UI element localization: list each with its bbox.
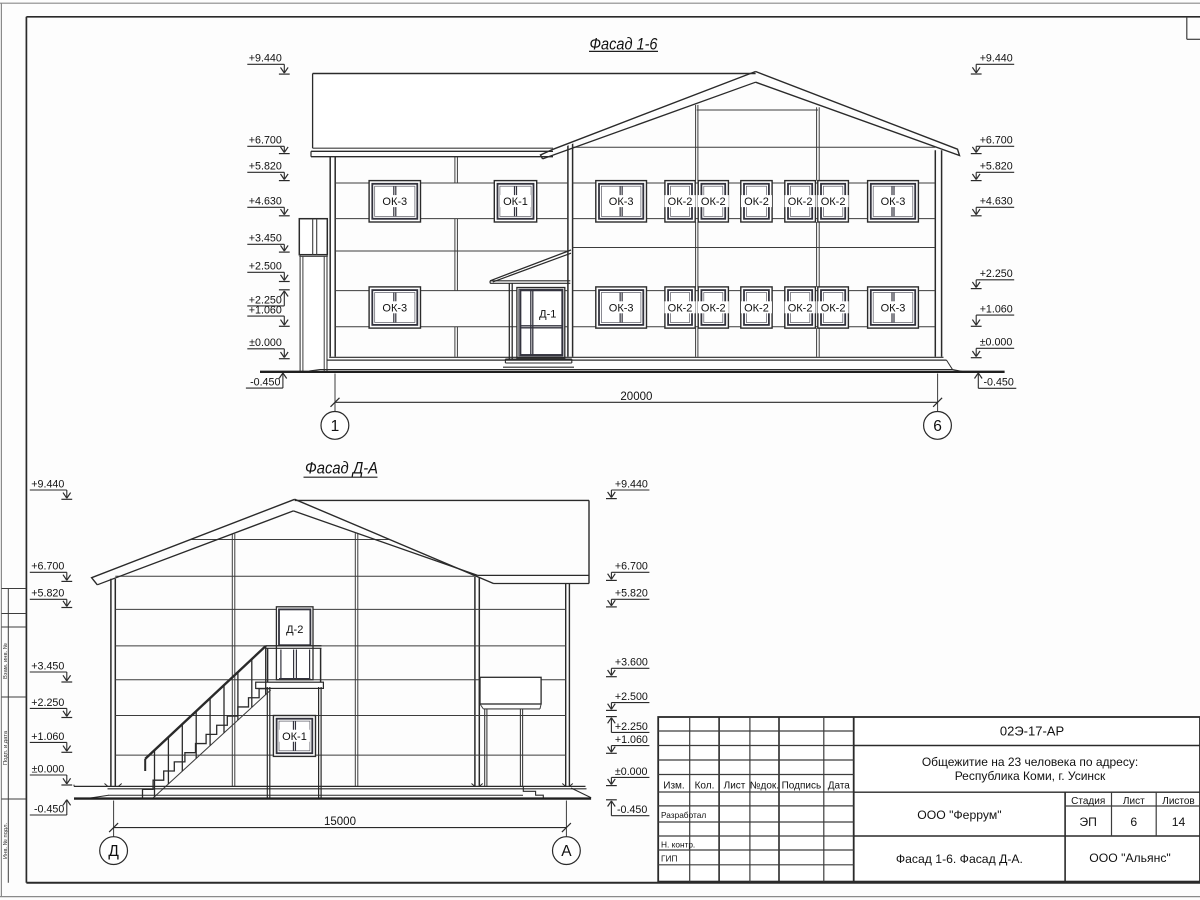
svg-text:Республика Коми, г. Усинск: Республика Коми, г. Усинск	[955, 769, 1106, 783]
svg-text:А: А	[561, 843, 572, 860]
svg-text:Подпись: Подпись	[782, 781, 822, 792]
svg-text:+6.700: +6.700	[615, 561, 648, 573]
svg-text:№док.: №док.	[750, 781, 779, 792]
svg-text:-0.450: -0.450	[984, 377, 1014, 389]
svg-text:Общежитие на 23 человека по ад: Общежитие на 23 человека по адресу:	[922, 755, 1138, 769]
svg-text:ОК-3: ОК-3	[382, 196, 407, 208]
svg-text:Лист: Лист	[1123, 796, 1145, 807]
svg-text:ОК-1: ОК-1	[503, 196, 528, 208]
svg-text:+5.820: +5.820	[249, 161, 282, 173]
svg-text:Инв. № подл.: Инв. № подл.	[3, 823, 9, 859]
svg-text:±0.000: ±0.000	[249, 337, 282, 349]
svg-text:02Э-17-АР: 02Э-17-АР	[1000, 724, 1064, 739]
svg-text:6: 6	[1130, 815, 1137, 829]
svg-text:ОК-3: ОК-3	[881, 302, 906, 314]
svg-text:Фасад 1-6. Фасад Д-А.: Фасад 1-6. Фасад Д-А.	[896, 852, 1023, 866]
svg-text:ОК-2: ОК-2	[788, 302, 813, 314]
svg-text:+9.440: +9.440	[31, 478, 64, 490]
svg-text:Подп. и дата: Подп. и дата	[3, 730, 9, 765]
svg-text:+1.060: +1.060	[980, 304, 1013, 316]
svg-text:ОК-2: ОК-2	[701, 196, 726, 208]
svg-text:Дата: Дата	[828, 781, 851, 792]
svg-text:+9.440: +9.440	[615, 478, 648, 490]
svg-text:+6.700: +6.700	[31, 561, 64, 573]
svg-text:ОК-2: ОК-2	[668, 302, 693, 314]
svg-text:+5.820: +5.820	[31, 588, 64, 600]
svg-text:ОК-1: ОК-1	[282, 731, 307, 743]
svg-text:+3.600: +3.600	[615, 657, 648, 669]
svg-text:ОК-3: ОК-3	[881, 196, 906, 208]
svg-text:+9.440: +9.440	[980, 53, 1013, 65]
svg-text:ОК-2: ОК-2	[744, 302, 769, 314]
svg-text:+1.060: +1.060	[31, 731, 64, 743]
svg-text:ОК-2: ОК-2	[821, 196, 846, 208]
svg-text:ОК-2: ОК-2	[788, 196, 813, 208]
svg-text:+4.630: +4.630	[980, 196, 1013, 208]
svg-text:+2.500: +2.500	[249, 261, 282, 273]
svg-text:ГИП: ГИП	[661, 854, 677, 864]
svg-text:Листов: Листов	[1162, 796, 1195, 807]
svg-text:ОК-3: ОК-3	[382, 302, 407, 314]
svg-text:+6.700: +6.700	[249, 135, 282, 147]
svg-text:±0.000: ±0.000	[32, 763, 65, 775]
svg-text:+1.060: +1.060	[249, 305, 282, 317]
svg-text:+2.250: +2.250	[31, 697, 64, 709]
svg-text:+2.500: +2.500	[615, 691, 648, 703]
svg-text:+9.440: +9.440	[249, 53, 282, 65]
svg-text:Д: Д	[108, 843, 119, 860]
svg-text:+6.700: +6.700	[980, 135, 1013, 147]
svg-text:±0.000: ±0.000	[980, 337, 1013, 349]
svg-text:+2.250: +2.250	[980, 268, 1013, 280]
svg-text:Фасад Д-А: Фасад Д-А	[305, 460, 378, 478]
svg-text:ОК-2: ОК-2	[744, 196, 769, 208]
svg-text:6: 6	[933, 418, 942, 435]
svg-text:Н. контр.: Н. контр.	[661, 839, 695, 849]
svg-text:Кол.: Кол.	[695, 781, 715, 792]
svg-text:ООО "Альянс": ООО "Альянс"	[1089, 851, 1171, 865]
svg-text:Стадия: Стадия	[1071, 796, 1105, 807]
svg-text:Изм.: Изм.	[663, 781, 684, 792]
svg-text:ЭП: ЭП	[1079, 815, 1097, 829]
svg-text:Д-1: Д-1	[539, 308, 556, 320]
svg-text:+1.060: +1.060	[615, 734, 648, 746]
svg-text:ООО "Феррум": ООО "Феррум"	[917, 808, 1001, 822]
svg-text:ОК-2: ОК-2	[668, 196, 693, 208]
svg-text:-0.450: -0.450	[34, 803, 64, 815]
svg-text:ОК-3: ОК-3	[609, 302, 634, 314]
svg-text:Взам. инв. №: Взам. инв. №	[3, 643, 9, 679]
svg-text:Д-2: Д-2	[286, 624, 303, 636]
svg-text:-0.450: -0.450	[617, 804, 647, 816]
svg-text:+2.250: +2.250	[615, 721, 648, 733]
svg-text:+3.450: +3.450	[31, 660, 64, 672]
svg-text:Лист: Лист	[724, 781, 746, 792]
svg-text:ОК-3: ОК-3	[609, 196, 634, 208]
svg-text:ОК-2: ОК-2	[821, 302, 846, 314]
svg-text:20000: 20000	[620, 391, 652, 403]
svg-text:15000: 15000	[324, 816, 356, 828]
svg-text:+5.820: +5.820	[615, 588, 648, 600]
svg-text:-0.450: -0.450	[250, 377, 280, 389]
svg-text:ОК-2: ОК-2	[701, 302, 726, 314]
svg-text:1: 1	[331, 418, 340, 435]
svg-text:+4.630: +4.630	[249, 196, 282, 208]
svg-text:±0.000: ±0.000	[615, 766, 648, 778]
svg-text:14: 14	[1172, 815, 1186, 829]
svg-text:+3.450: +3.450	[249, 233, 282, 245]
svg-text:+5.820: +5.820	[980, 161, 1013, 173]
svg-text:Разработал: Разработал	[661, 810, 706, 820]
